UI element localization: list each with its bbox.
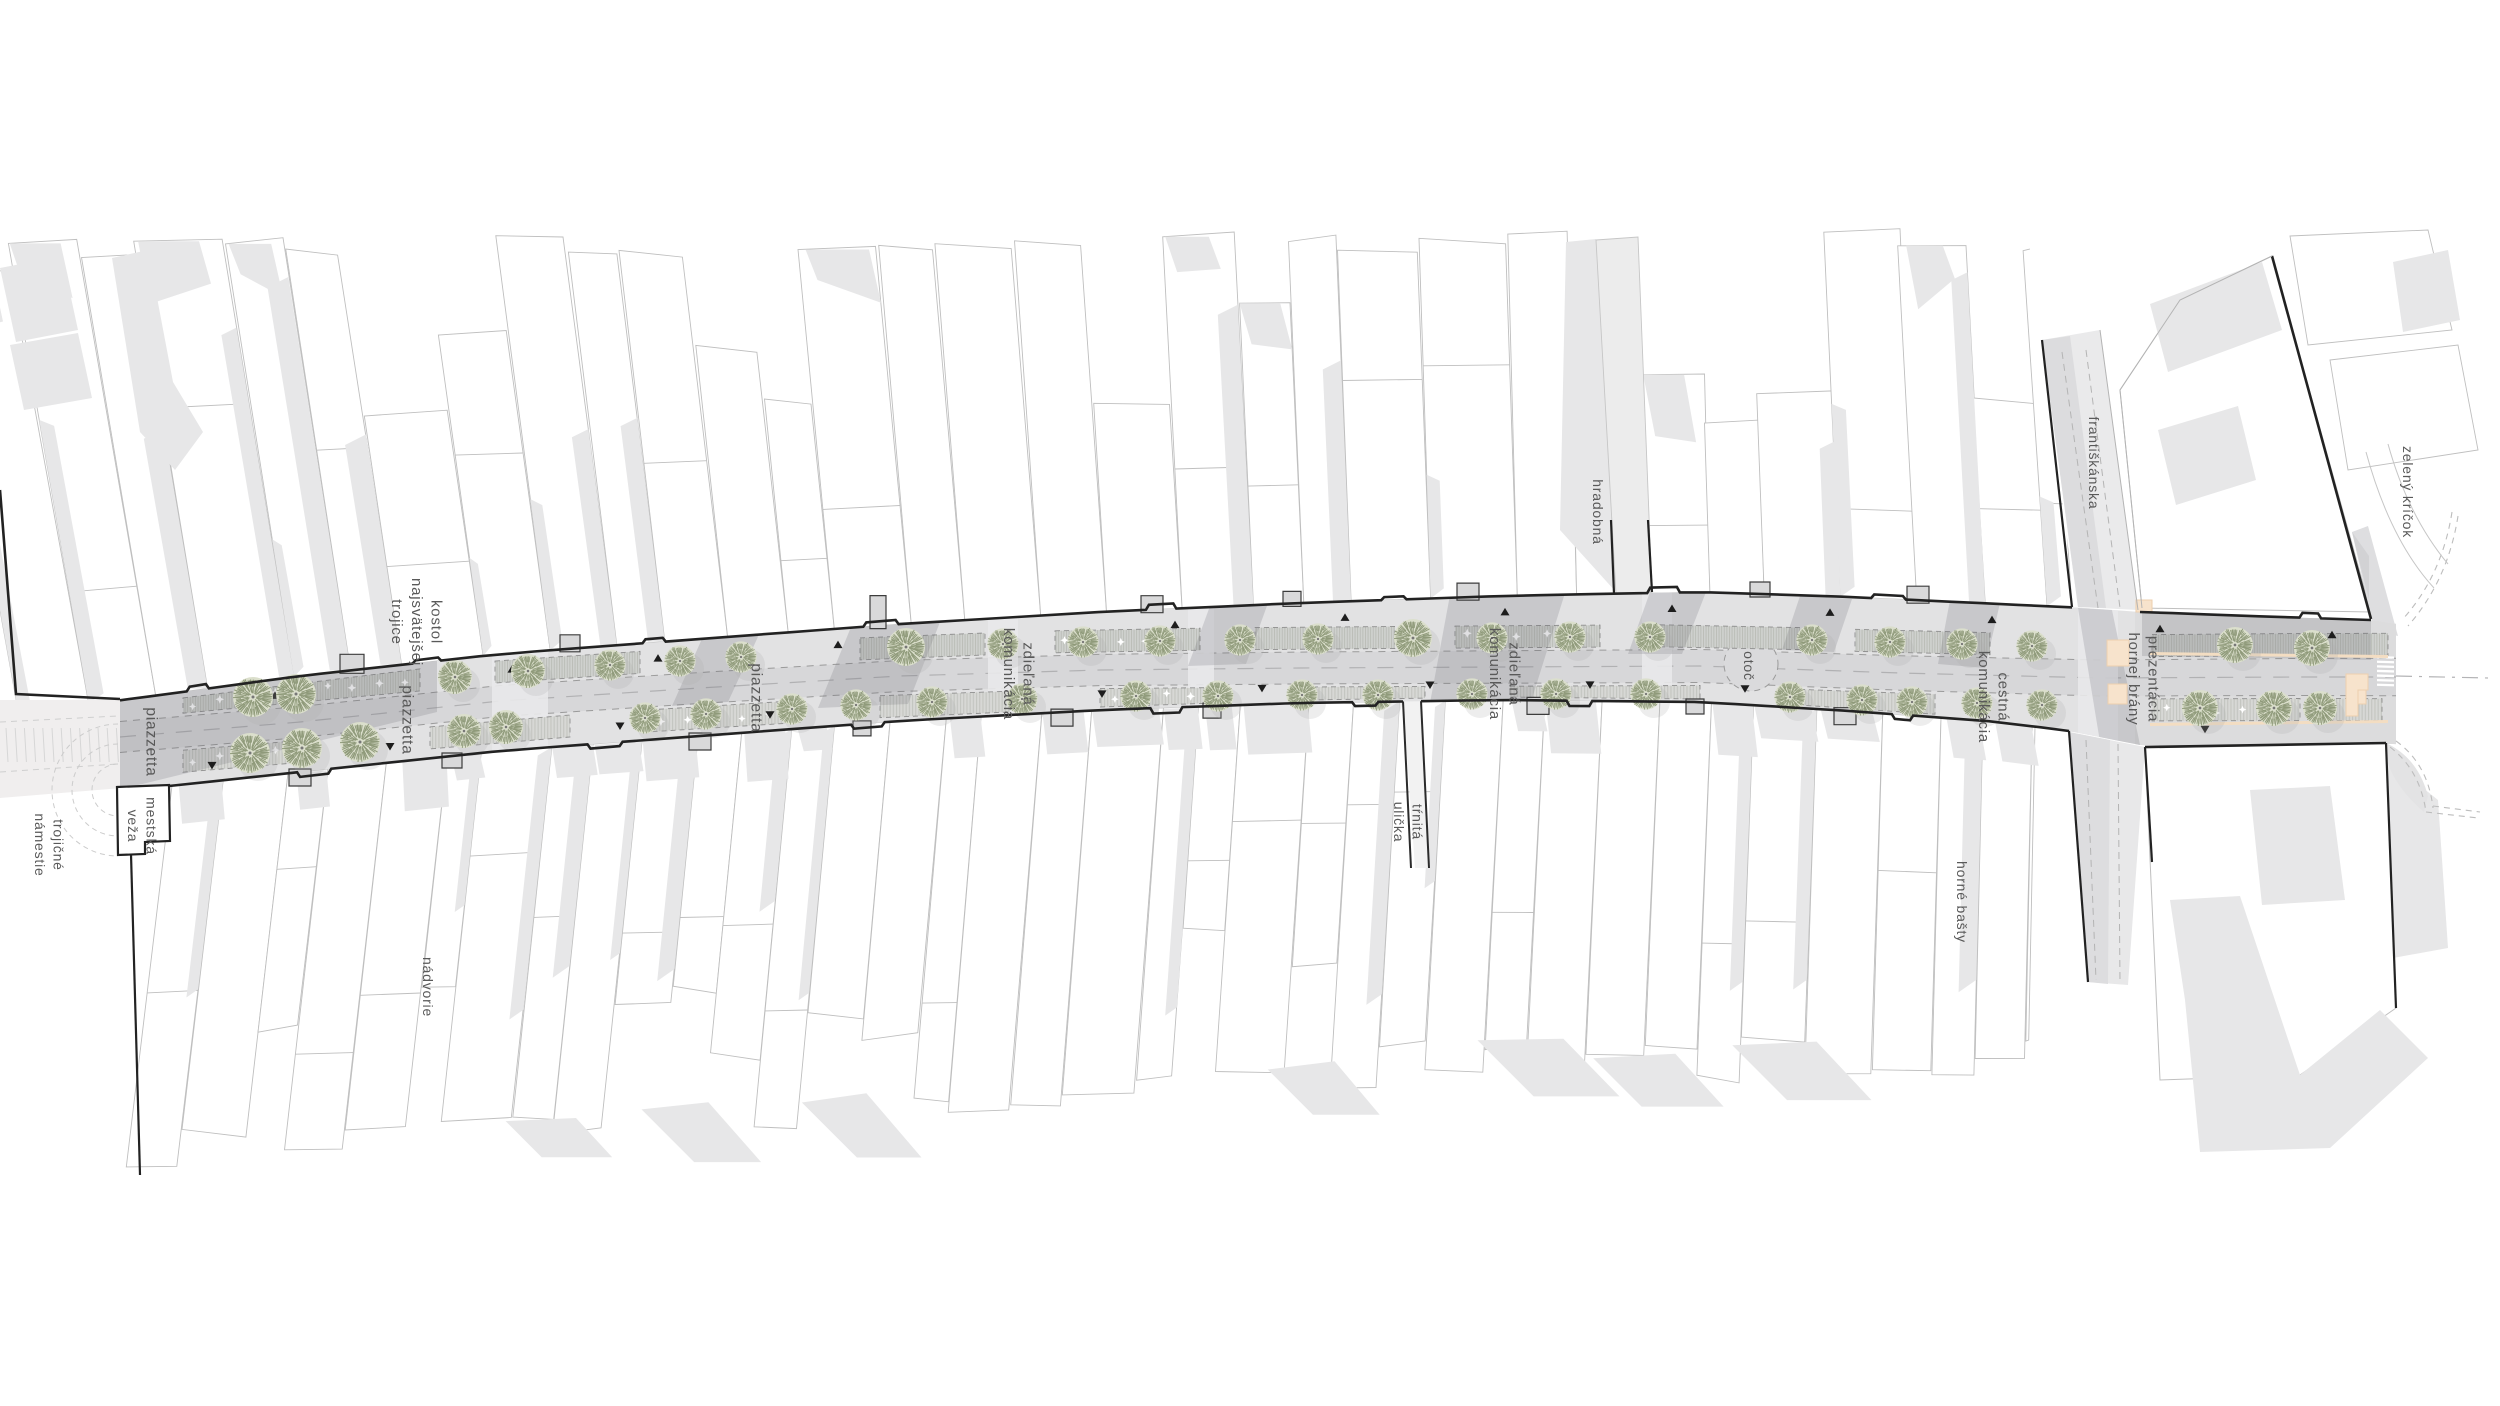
svg-text:horné bašty: horné bašty	[1954, 861, 1970, 943]
svg-text:hradobná: hradobná	[1590, 479, 1606, 545]
svg-text:otoč: otoč	[1741, 651, 1757, 681]
svg-text:nádvorie: nádvorie	[420, 957, 436, 1017]
svg-text:piazzetta: piazzetta	[748, 663, 765, 732]
svg-text:zelený kríčok: zelený kríčok	[2400, 446, 2416, 538]
svg-text:piazzetta: piazzetta	[143, 707, 160, 776]
svg-text:piazzetta: piazzetta	[399, 685, 416, 754]
svg-text:františkánska: františkánska	[2086, 417, 2102, 510]
